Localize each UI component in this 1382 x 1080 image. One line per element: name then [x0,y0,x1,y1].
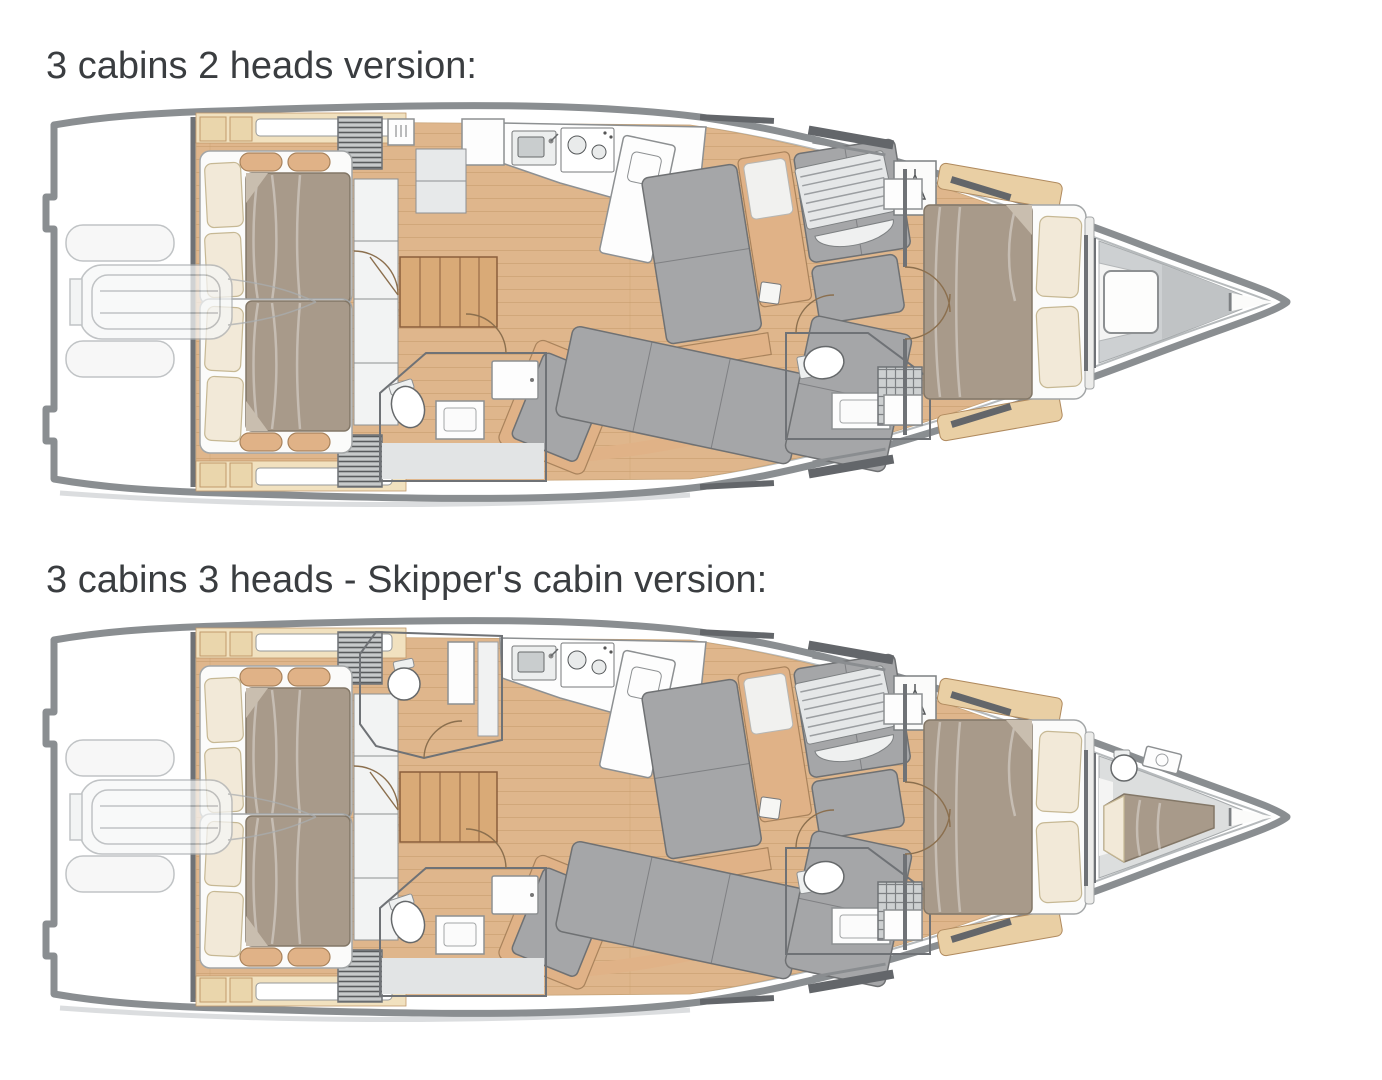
deck-plan-3-cabins-3-heads-skipper [46,621,1287,1020]
plan2-title: 3 cabins 3 heads - Skipper's cabin versi… [46,559,767,601]
shower-panel [448,642,474,704]
yacht-deck-plans-page: 3 cabins 2 heads version: 3 cabins 3 hea… [0,0,1382,1080]
deck-plan-3-cabins-2-heads [46,106,1287,505]
toilet [388,668,420,700]
plan1-title: 3 cabins 2 heads version: [46,45,477,87]
yacht-deck-plans-figure: 3 cabins 2 heads version: 3 cabins 3 hea… [0,0,1382,1080]
berth-pillow [1104,796,1124,862]
deck-hatch [1104,271,1158,333]
galley-end-counter [462,119,504,165]
skipper-toilet [1111,755,1137,781]
head-door-panel [478,642,498,736]
